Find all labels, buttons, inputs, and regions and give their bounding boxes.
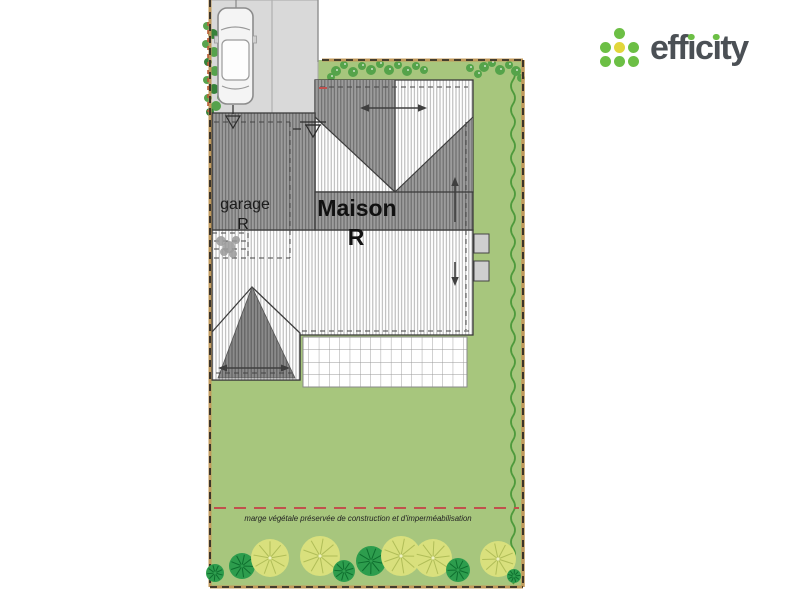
logo-dot: [614, 28, 625, 39]
shrub-icon: [340, 61, 348, 69]
window: [474, 234, 489, 253]
shrub-icon: [402, 66, 412, 76]
shrub-icon: [348, 67, 358, 77]
vegetal-margin-note: marge végétale préservée de construction…: [244, 514, 471, 523]
tree-icon: [206, 564, 224, 582]
tree-icon: [446, 558, 470, 582]
shrub-icon: [420, 66, 428, 74]
logo-letter-i: ı: [712, 31, 720, 65]
shrub-icon: [474, 70, 482, 78]
garage-label: garage: [220, 196, 270, 213]
tree-icon: [251, 539, 289, 577]
efficity-logo-dots-icon: [599, 27, 641, 69]
car-icon: [215, 0, 257, 104]
shrub-icon: [479, 62, 489, 72]
site-plan-page: garage R Maison R marge végétale préserv…: [0, 0, 800, 600]
tree-icon: [507, 569, 521, 583]
shrub-icon: [495, 65, 505, 75]
shrub-icon: [358, 62, 366, 70]
maison-label: Maison: [317, 195, 396, 221]
logo-dot: [600, 42, 611, 53]
house: garage R Maison R: [212, 80, 489, 387]
shrub-icon: [366, 65, 376, 75]
garage-level-label: R: [237, 216, 249, 233]
tree-icon: [356, 546, 386, 576]
logo-dot: [628, 56, 639, 67]
green-i-dot-icon: [713, 34, 720, 41]
logo-text-part: ty: [720, 29, 747, 67]
terrace: [303, 337, 467, 387]
efficity-wordmark: effıcıty: [650, 31, 748, 65]
shrub-icon: [394, 61, 402, 69]
green-i-dot-icon: [688, 34, 695, 41]
logo-text-part: c: [695, 29, 712, 67]
shrub-icon: [505, 61, 513, 69]
shrub-icon: [384, 65, 394, 75]
window: [474, 261, 489, 281]
logo-letter-i: ı: [687, 31, 695, 65]
shrub-icon: [466, 64, 474, 72]
logo-dot: [614, 42, 625, 53]
tree-icon: [333, 560, 355, 582]
logo-dot: [614, 56, 625, 67]
logo-dot: [628, 42, 639, 53]
efficity-logo: effıcıty: [599, 27, 748, 69]
logo-text-part: eff: [650, 29, 687, 67]
logo-dot: [600, 56, 611, 67]
shrub-icon: [412, 62, 420, 70]
site-plan-drawing: garage R Maison R marge végétale préserv…: [0, 0, 800, 600]
maison-level-label: R: [348, 224, 365, 250]
